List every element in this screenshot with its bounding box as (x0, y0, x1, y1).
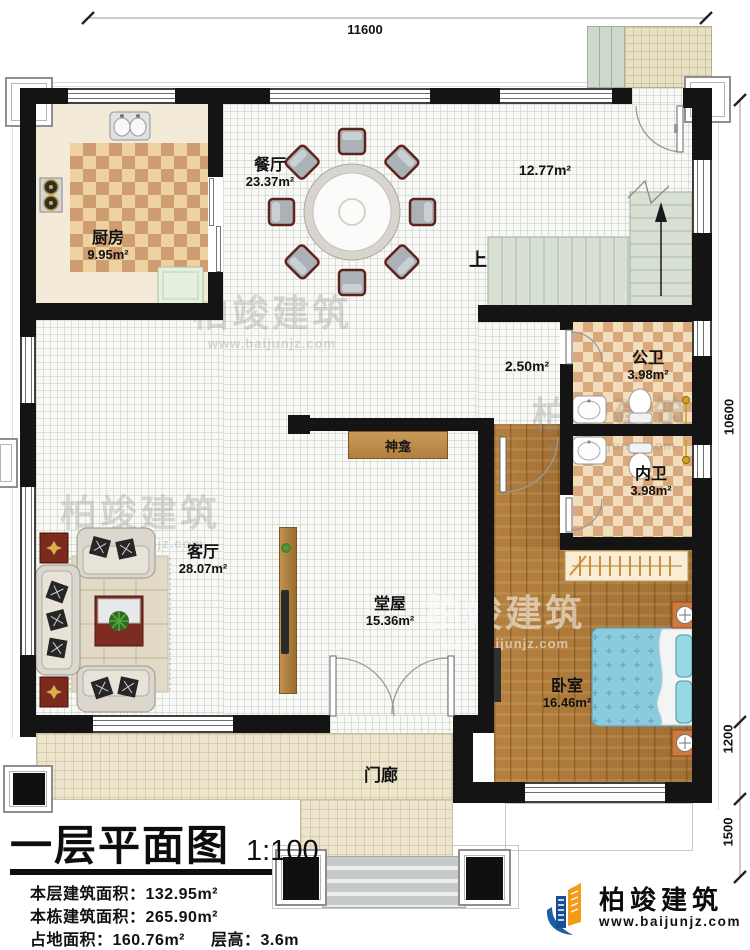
info-floor-area: 本层建筑面积：132.95m² (30, 880, 218, 904)
wall (20, 403, 36, 487)
dim-tick (734, 793, 746, 805)
stairs-up-label: 上 (469, 250, 487, 271)
window (500, 88, 612, 104)
wall (478, 305, 712, 322)
wall (430, 88, 500, 104)
logo-url: www.baijunjz.com (599, 914, 741, 929)
wall (692, 104, 712, 160)
wall (292, 418, 492, 431)
logo-text: 柏竣建筑 (599, 887, 741, 914)
wall (208, 104, 223, 177)
window (270, 88, 430, 104)
room-label-main-hall: 堂屋 15.36m² (366, 596, 414, 629)
dim-tick (734, 94, 746, 106)
wall (175, 88, 270, 104)
window (20, 337, 36, 403)
window (525, 782, 665, 803)
window (692, 160, 712, 233)
info-building-area: 本栋建筑面积：265.90m² (30, 903, 218, 927)
window (68, 88, 175, 104)
sliding-door (216, 226, 221, 272)
room-label-dining: 餐厅 23.37m² (246, 157, 294, 190)
wall (20, 715, 93, 733)
wall (692, 356, 712, 445)
title-block: 一层平面图 1:100 (10, 812, 319, 873)
room-label-private-bath: 内卫 3.98m² (630, 466, 671, 499)
door-leaf (566, 498, 572, 532)
floor-plan: 柏竣建筑 www.baijunjz.com 柏竣建筑 www.baijunjz.… (0, 0, 750, 950)
room-label-porch: 门廊 (364, 766, 398, 786)
wall (20, 88, 36, 337)
porch-column (466, 857, 503, 900)
wall (453, 715, 494, 733)
dim-right-mid: 1200 (721, 725, 736, 754)
tv-icon (281, 590, 289, 654)
eave-line (12, 88, 13, 738)
bedroom-wood-floor (494, 550, 695, 782)
wall (692, 478, 712, 803)
scale-label: 1:100 (246, 835, 319, 868)
door-leaf (566, 330, 572, 364)
wall (665, 782, 712, 803)
door-threshold (330, 715, 453, 733)
dim-right-lower: 1500 (721, 818, 736, 847)
dim-tick (82, 12, 94, 24)
dim-tick (700, 12, 712, 24)
company-logo: 柏竣建筑 www.baijunjz.com (543, 880, 741, 936)
info-land-area: 占地面积：160.76m²层高：3.6m (30, 926, 299, 950)
plant-icon (281, 543, 291, 553)
area-label-stair-hall: 12.77m² (519, 162, 571, 178)
logo-icon (543, 880, 589, 936)
room-label-kitchen: 厨房 9.95m² (87, 230, 128, 263)
wall (20, 303, 223, 320)
shrine-label: 神龛 (385, 436, 411, 455)
column-mid-left (0, 438, 18, 488)
terrace-outline (505, 803, 693, 851)
window (692, 321, 712, 356)
wall (612, 88, 632, 104)
porch-column (13, 773, 45, 805)
dim-tick (734, 716, 746, 728)
window (93, 715, 233, 733)
wall (453, 782, 525, 803)
wall (560, 322, 573, 330)
wall (208, 272, 223, 305)
window (20, 487, 36, 655)
dim-top: 11600 (347, 22, 382, 37)
area-label-inner-hall: 2.50m² (505, 358, 549, 374)
corridor-wood-floor (494, 424, 560, 550)
window (692, 445, 712, 478)
dining-living-floor (223, 104, 478, 715)
wall (478, 418, 494, 715)
room-label-living: 客厅 28.07m² (179, 544, 227, 577)
wall (560, 537, 712, 550)
entry-side-panel (587, 26, 625, 88)
stair-hall-floor (478, 104, 692, 305)
living-floor (36, 320, 223, 715)
front-steps (322, 856, 466, 908)
eave-line (718, 96, 719, 810)
room-label-public-bath: 公卫 3.98m² (627, 350, 668, 383)
room-label-bedroom: 卧室 16.46m² (543, 678, 591, 711)
entry-threshold (632, 88, 683, 104)
wall (560, 424, 692, 436)
wall (233, 715, 330, 733)
page-title: 一层平面图 (10, 812, 230, 873)
title-underline (10, 869, 272, 875)
shrine-cabinet: 神龛 (348, 431, 448, 459)
dim-right-upper: 10600 (722, 399, 737, 435)
sliding-door (209, 178, 214, 226)
